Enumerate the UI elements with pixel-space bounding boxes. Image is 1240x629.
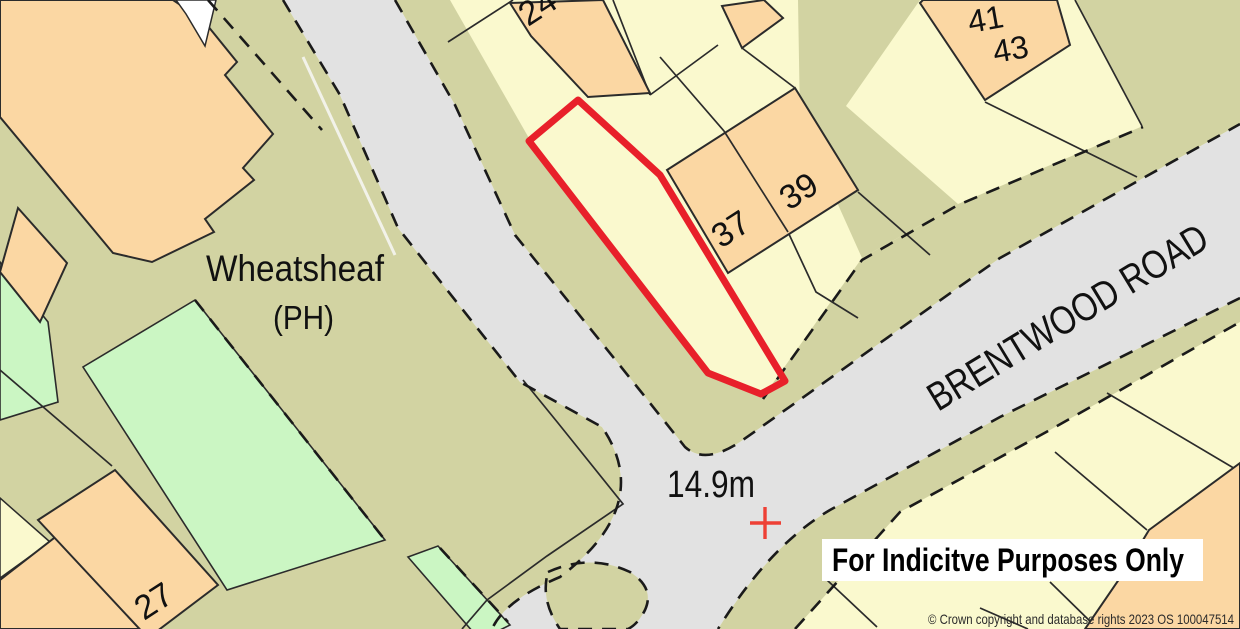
notice-text: For Indicitve Purposes Only [832,542,1184,578]
attribution-text: © Crown copyright and database rights 20… [928,611,1234,627]
label-pub-type: (PH) [273,299,334,336]
notice-banner: For Indicitve Purposes Only [822,539,1203,581]
label-spot-height: 14.9m [667,464,755,506]
label-house-43: 43 [990,28,1031,70]
site-location-plan: Wheatsheaf (PH) 14.9m BRENTWOOD ROAD 24 … [0,0,1240,629]
label-pub-name: Wheatsheaf [206,248,385,289]
map-canvas: Wheatsheaf (PH) 14.9m BRENTWOOD ROAD 24 … [0,0,1240,629]
